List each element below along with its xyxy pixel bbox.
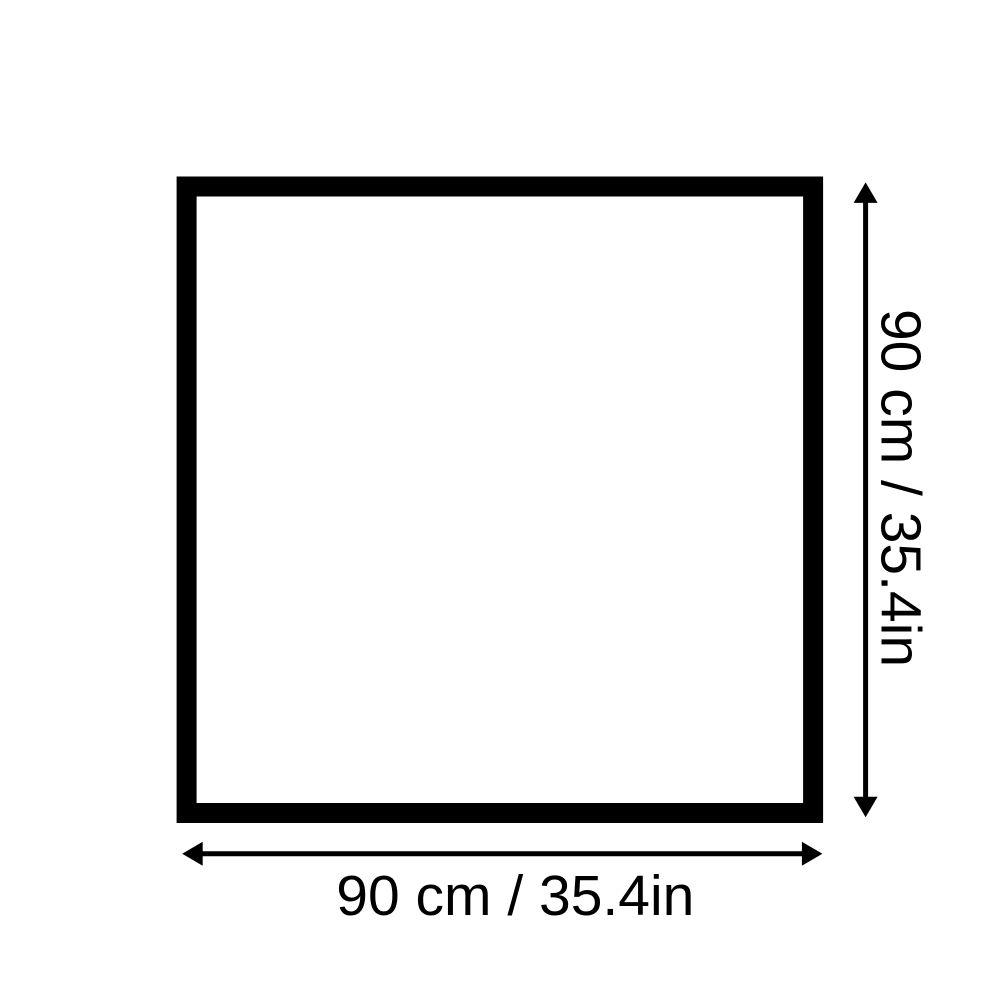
svg-text:90 cm / 35.4in: 90 cm / 35.4in	[869, 309, 933, 667]
svg-text:90 cm / 35.4in: 90 cm / 35.4in	[336, 864, 694, 928]
